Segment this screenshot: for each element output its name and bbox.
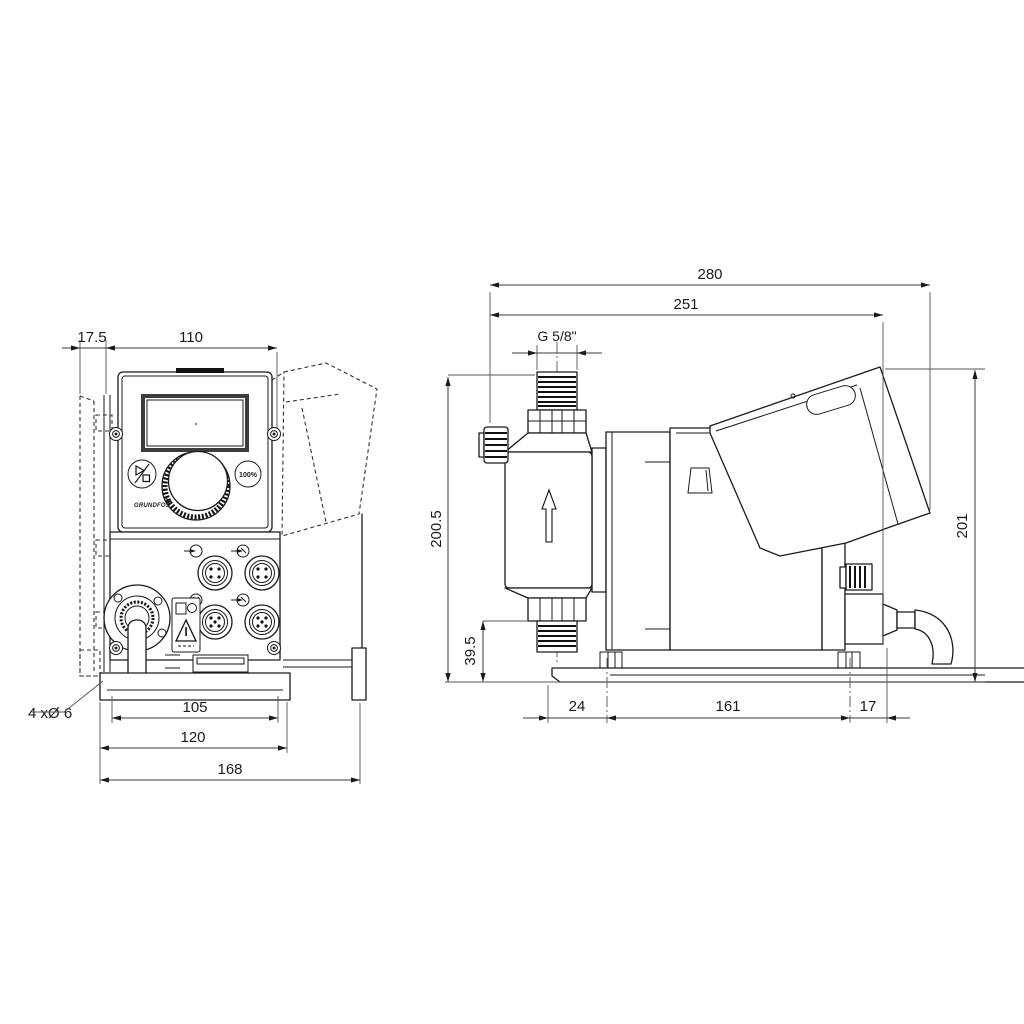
percent-button-label: 100% (239, 472, 258, 479)
drawing-page: { "title": "Dosing pump dimensional draw… (0, 0, 1024, 1024)
housing-flange (606, 432, 670, 650)
dim-17-label: 17 (860, 698, 877, 715)
discharge-valve (528, 372, 586, 433)
mounting-plate (100, 673, 290, 700)
priming-valve[interactable] (479, 427, 508, 463)
dim-105-label: 105 (182, 699, 207, 716)
dim-200-5-label: 200.5 (428, 510, 445, 548)
dim-valve-height: 39.5 (462, 621, 528, 682)
connection-body (104, 532, 281, 688)
m12-connector[interactable] (198, 556, 232, 590)
rear-body-edge (283, 514, 366, 700)
dim-251-label: 251 (673, 296, 698, 313)
dim-161-label: 161 (715, 698, 740, 715)
suction-valve (528, 598, 586, 652)
head-backplate (592, 448, 606, 592)
warning-label (172, 598, 200, 652)
dim-280-label: 280 (697, 266, 722, 283)
front-view: 100% GRUNDFOS (28, 329, 377, 784)
click-wheel[interactable] (162, 452, 230, 521)
dim-mounting-holes: 4 xØ 6 (28, 681, 103, 722)
m12-connector[interactable] (245, 605, 279, 639)
dim-201-label: 201 (954, 513, 971, 538)
mounting-holes-label: 4 xØ 6 (28, 705, 72, 722)
foot-clips (600, 652, 860, 668)
power-cable (845, 594, 953, 664)
logo-text: GRUNDFOS (134, 503, 170, 509)
rear-connections (840, 564, 953, 664)
display (143, 396, 247, 450)
wall-plate-hidden (80, 395, 112, 676)
dim-120-label: 120 (180, 729, 205, 746)
side-view: 280 251 G 5/8" 200.5 (428, 266, 1024, 723)
dosing-head (479, 427, 606, 598)
panel-top-tab (176, 368, 224, 373)
dim-17-5-label: 17.5 (77, 329, 106, 346)
dim-39-5-label: 39.5 (462, 636, 479, 665)
m12-connector[interactable] (198, 605, 232, 639)
base-plate-side (552, 668, 1024, 682)
start-stop-button[interactable] (128, 460, 156, 488)
dim-overall-width: 168 (100, 703, 360, 784)
dim-110-label: 110 (179, 329, 203, 346)
dimensional-drawing: 100% GRUNDFOS (0, 0, 1024, 1024)
m12-connector[interactable] (245, 556, 279, 590)
housing-tab (688, 468, 712, 493)
percent-button[interactable]: 100% (235, 461, 261, 487)
dim-24-label: 24 (569, 698, 586, 715)
pump-body-phantom (272, 363, 377, 536)
thread-label: G 5/8" (537, 328, 576, 344)
dim-168-label: 168 (217, 761, 242, 778)
front-panel: 100% GRUNDFOS (110, 368, 281, 532)
